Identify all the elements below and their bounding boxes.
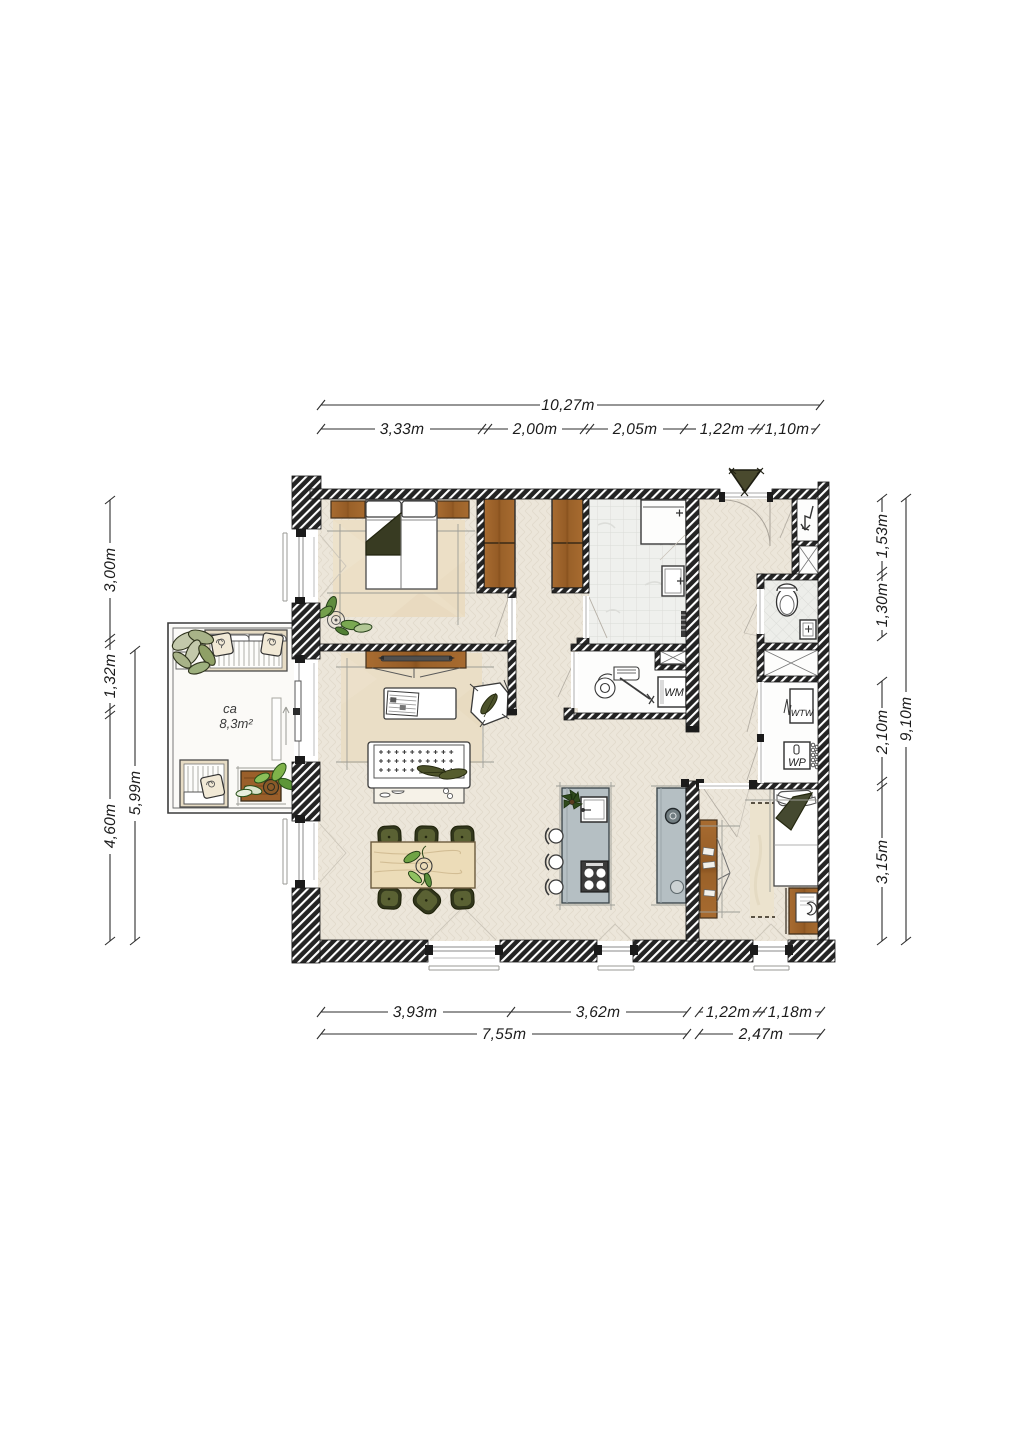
svg-text:WM: WM [664,687,684,699]
svg-text:1,22m: 1,22m [706,1004,751,1021]
svg-text:1,18m: 1,18m [768,1004,813,1021]
svg-text:ca: ca [223,701,237,716]
svg-text:2,47m: 2,47m [738,1026,784,1043]
svg-text:WTW: WTW [791,708,815,718]
svg-text:WP: WP [788,757,806,769]
svg-text:10,27m: 10,27m [541,397,595,414]
svg-text:2,05m: 2,05m [612,421,658,438]
svg-text:1,32m: 1,32m [102,654,119,699]
svg-text:1,53m: 1,53m [874,514,891,559]
svg-text:7,55m: 7,55m [482,1026,527,1043]
svg-text:3,62m: 3,62m [576,1004,621,1021]
svg-text:3,00m: 3,00m [102,548,119,593]
svg-text:1,10m: 1,10m [765,421,810,438]
svg-text:2,00m: 2,00m [512,421,558,438]
svg-text:3,15m: 3,15m [874,840,891,885]
svg-text:3,33m: 3,33m [380,421,425,438]
svg-text:9,10m: 9,10m [898,697,915,742]
svg-text:8,3m²: 8,3m² [219,716,253,731]
svg-text:1,22m: 1,22m [700,421,745,438]
svg-text:5,99m: 5,99m [127,771,144,816]
svg-text:1,30m: 1,30m [874,583,891,628]
svg-text:4,60m: 4,60m [102,804,119,849]
svg-text:3,93m: 3,93m [393,1004,438,1021]
svg-text:2,10m: 2,10m [874,710,891,756]
